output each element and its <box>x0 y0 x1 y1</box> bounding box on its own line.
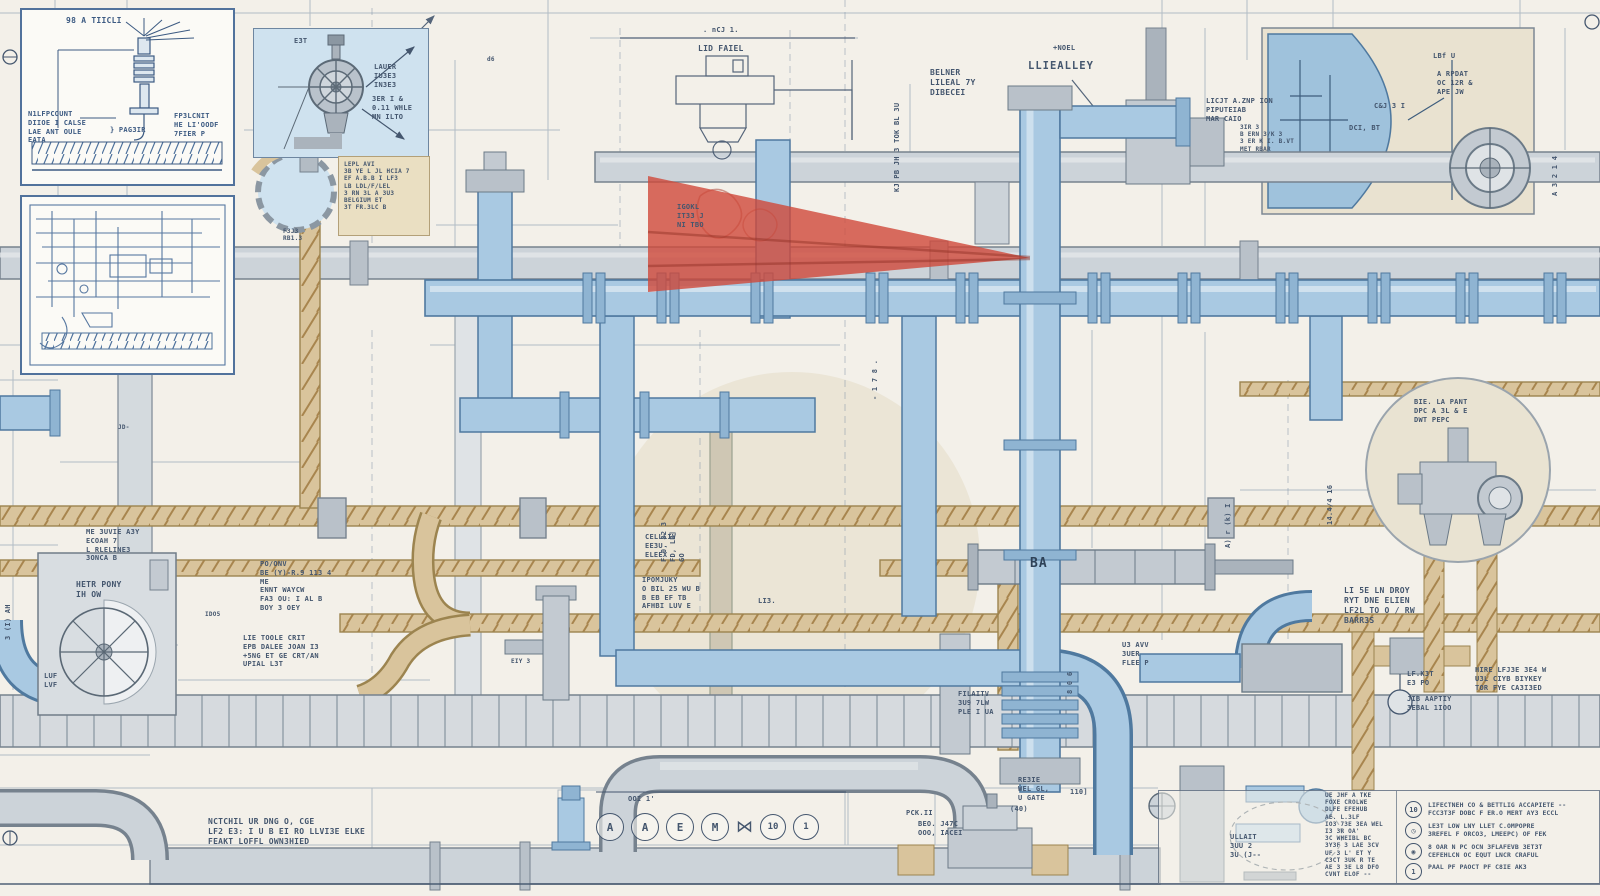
annotation-label: (40) <box>1010 805 1028 814</box>
annotation-label: BELNER LILEAL 7Y DIBECEI <box>930 68 976 98</box>
annotation-label: NCTCHIL UR DNG O, CGE LF2 E3: I U B EI R… <box>208 817 365 847</box>
annotation-label: EIY 3 <box>511 658 530 665</box>
annotation-label: . nCJ 1. <box>703 26 739 35</box>
annotation-label: BEO. J47C OOO, IACEI <box>918 820 963 838</box>
annotation-label: F 0, 82 3 FD, LB] GO <box>660 522 686 562</box>
tag-circle: M <box>701 813 729 841</box>
legend-item-text: LIFECTNEH CO & BETTLIG ACCAPIETE -- FCC3… <box>1428 801 1566 817</box>
annotation-label: FILAITV 3U9 7LW PLE I UA <box>958 690 994 716</box>
annotation-label: C&J 3 I <box>1374 102 1405 111</box>
annotation-label: IGOKL IT33 J NI TBO <box>677 203 704 229</box>
annotation-label: LID FAIEL <box>698 44 744 54</box>
annotation-label: d6 <box>487 56 495 63</box>
annotation-label: U3 AVV 3UER FLEE P <box>1122 641 1149 667</box>
annotation-label: IDO5 <box>205 611 220 618</box>
legend-badge-icon: ◉ <box>1405 843 1422 860</box>
tags-row: A A E M ⋈ 10 1 <box>596 813 819 841</box>
annotation-label: LI 5E LN DROY RYT DNE ELIEN LF2L TO O / … <box>1344 586 1415 626</box>
piping-drawing <box>0 0 1600 896</box>
tan-note-footer: F3J3 RB1.3 <box>283 228 302 242</box>
tag-circle: 1 <box>793 814 819 840</box>
annotation-label: A) r (k) I <box>1224 503 1233 548</box>
annotation-label: 3 (I) AH <box>4 604 13 640</box>
blueprint-canvas: 98 A TIICLI N1LFPCOUNT DIIOE I CALSE LAE… <box>0 0 1600 896</box>
valve-wheel-panel: E3T LAUER IU3E3 IN3E3 3ER I & 0.11 WHLE … <box>253 28 429 158</box>
blueprint-inset-drawing <box>22 197 233 373</box>
annotation-label: - 1 7 8 . <box>871 360 880 400</box>
annotation-label: JD- <box>118 424 130 431</box>
valve-panel-note-b: 3ER I & 0.11 WHLE MN ILTO <box>372 95 412 121</box>
annotation-label: DCI, BT <box>1349 124 1380 133</box>
annotation-label: KJ PB JH 3 TOK BL 3U <box>893 103 902 192</box>
annotation-label: LF.K3T E3 PO <box>1407 670 1434 688</box>
sprinkler-detail-drawing <box>22 10 233 184</box>
inset-detail-b <box>20 195 235 375</box>
tag-circle: A <box>596 813 624 841</box>
annotation-label: PO/ONV BE (Y)-R.9 113 4 ME ENNT WAYCW FA… <box>260 560 331 613</box>
valve-wheel-drawing <box>254 29 427 156</box>
annotation-label: LICJT A.ZNP ION PIPUTEIAB MAR CAIO <box>1206 97 1273 123</box>
legend-item: ◉ 8 OAR N PC OCN 3FLAFEVB 3ET3T CEFEHLCN… <box>1405 843 1542 860</box>
legend-badge-icon: 10 <box>1405 801 1422 818</box>
inset-note-left: N1LFPCOUNT DIIOE I CALSE LAE ANT OULE EA… <box>28 110 86 145</box>
inset-title: 98 A TIICLI <box>66 16 122 26</box>
fan-unit <box>38 553 176 715</box>
legend-item: 1 PAAL PF PAOCT PF C8IE AK3 <box>1405 863 1527 880</box>
annotation-label: A RPDAT OC 12R & APE JW <box>1437 70 1473 96</box>
inset-tag: } PAG3IR <box>110 126 146 135</box>
annotation-label: ULLAIT 3UU 2 3U (J-- <box>1230 833 1261 859</box>
legend-badge-icon: ◷ <box>1405 822 1422 839</box>
valve-panel-note-a: LAUER IU3E3 IN3E3 <box>374 63 396 89</box>
legend-badge-icon: 1 <box>1405 863 1422 880</box>
tan-note-box: LEPL AVI 3B YE L JL HCIA 7 EF A.B.B I LF… <box>338 156 430 236</box>
legend-item-text: PAAL PF PAOCT PF C8IE AK3 <box>1428 863 1527 871</box>
legend-item-text: LE3T LOW LNY LLET C.OMPOPRE 3REFEL F ORC… <box>1428 822 1546 838</box>
annotation-label: LLIEALLEY <box>1028 60 1094 73</box>
annotation-label: IPOMJUKY O BIL 25 WU B B EB EF TB AFHBI … <box>642 576 700 611</box>
annotation-label: LUF LVF <box>44 672 57 690</box>
annotation-label: BA <box>1030 556 1048 572</box>
annotation-label: 14.4/4 16 <box>1326 485 1335 525</box>
legend-item: 10 LIFECTNEH CO & BETTLIG ACCAPIETE -- F… <box>1405 801 1566 818</box>
annotation-label: 8 0 6 <box>1066 672 1075 694</box>
annotation-label: HIRE LFJ3E 3E4 W U3L CIYB BIYKEY TOR FYE… <box>1475 666 1546 692</box>
annotation-label: BIE. LA PANT DPC A 3L & E DWT PEPC <box>1414 398 1468 424</box>
annotation-label: JIB AAPTIY 3EBAL 1IOO <box>1407 695 1452 713</box>
tag-circle: E <box>666 813 694 841</box>
inset-detail-a: 98 A TIICLI N1LFPCOUNT DIIOE I CALSE LAE… <box>20 8 235 186</box>
annotation-label: PCK.II <box>906 809 933 818</box>
legend-item: ◷ LE3T LOW LNY LLET C.OMPOPRE 3REFEL F O… <box>1405 822 1546 839</box>
annotation-label: +NOEL <box>1053 44 1075 53</box>
annotation-label: UE JHF A TKE FOXE CROLWE DLFE EFEHUB AE.… <box>1325 792 1383 878</box>
annotation-label: LI3. <box>758 597 776 606</box>
tag-circle: 10 <box>760 814 786 840</box>
annotation-label: 110] <box>1070 788 1088 797</box>
tan-note-text: LEPL AVI 3B YE L JL HCIA 7 EF A.B.B I LF… <box>344 161 410 211</box>
tags-dimension: OOI 1' <box>628 795 655 804</box>
inset-note-right: FP3LCNIT HE LI'OODF 7FIER P <box>174 112 219 138</box>
annotation-label: LBf U <box>1433 52 1455 61</box>
annotation-label: A 3 2 1 4 <box>1551 156 1560 196</box>
valve-panel-tag: E3T <box>294 37 307 46</box>
annotation-label: LIE TOOLE CRIT EPB DALEE JOAN I3 +5NG ET… <box>243 634 319 669</box>
tag-circle: A <box>631 813 659 841</box>
annotation-label: RE3IE WEL GL, U GATE <box>1018 776 1049 802</box>
legend-item-text: 8 OAR N PC OCN 3FLAFEVB 3ET3T CEFEHLCN O… <box>1428 843 1542 859</box>
annotation-label: 3IR 3 B ERN 3/K 3 3 ER K I. B.VT MET RBA… <box>1240 124 1294 153</box>
valve-icon: ⋈ <box>736 819 753 836</box>
annotation-label: ME 3UVIE A3Y ECOAH 7 L RLELINE3 3ONCA B <box>86 528 140 563</box>
annotation-label: HETR PONY IH OW <box>76 580 122 600</box>
legend-divider <box>1396 791 1397 883</box>
